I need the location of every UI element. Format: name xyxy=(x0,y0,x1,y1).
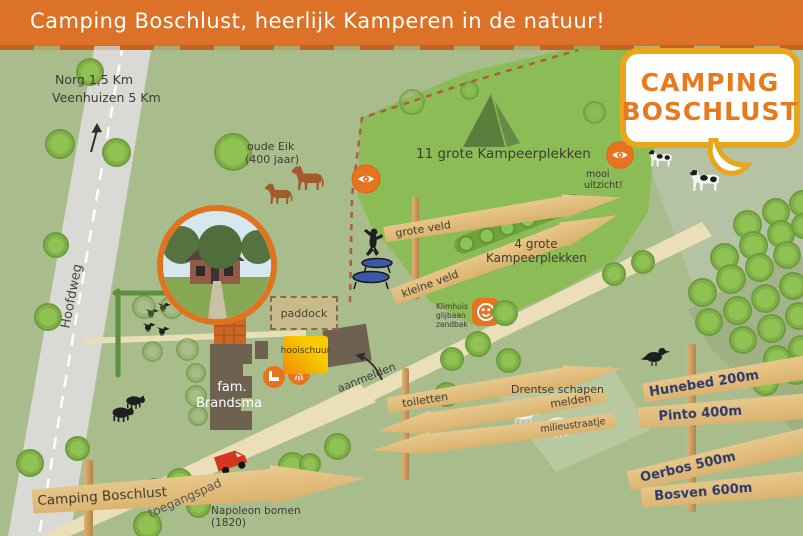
camping-map: Camping Boschlust, heerlijk Kamperen in … xyxy=(0,0,803,536)
chicken-icon xyxy=(143,323,155,332)
horse-icon xyxy=(292,166,324,190)
title-banner: Camping Boschlust, heerlijk Kamperen in … xyxy=(0,0,803,46)
field-large-label: 11 grote Kampeerplekken xyxy=(416,147,591,163)
tree-icon xyxy=(176,338,199,361)
tree-icon xyxy=(602,262,626,286)
tree-icon xyxy=(440,347,464,371)
tree-icon xyxy=(773,241,801,269)
playground-label-3: zandbak xyxy=(436,321,468,330)
horse-icon xyxy=(265,184,292,204)
logo: CAMPING BOSCHLUST xyxy=(620,48,800,148)
pig-icon xyxy=(126,396,145,410)
hay-barn-label: hooischuur xyxy=(281,346,331,356)
tree-icon xyxy=(399,89,425,115)
logo-tail xyxy=(706,138,770,190)
tree-icon xyxy=(631,250,655,274)
tree-icon xyxy=(132,295,156,319)
field-small-label-2: Kampeerplekken xyxy=(486,252,586,266)
sign-label: Pinto 400m xyxy=(658,403,742,424)
tree-icon xyxy=(324,433,351,460)
viewpoint-label-2: uitzicht! xyxy=(584,181,623,192)
paddock-label: paddock xyxy=(281,307,328,320)
chicken-icon xyxy=(157,327,169,336)
tree-icon xyxy=(751,284,780,313)
eye-icon xyxy=(352,165,380,193)
map-title: Camping Boschlust, heerlijk Kamperen in … xyxy=(30,9,605,33)
oak-label-2: (400 jaar) xyxy=(245,154,299,167)
tree-icon xyxy=(695,308,723,336)
sheep-label: Drentse schapen xyxy=(511,384,604,397)
tree-icon xyxy=(142,341,163,362)
farmhouse-photo xyxy=(157,205,277,325)
oak-label-1: oude Eik xyxy=(247,141,294,154)
field-small-label-1: 4 grote xyxy=(500,238,572,252)
tree-icon xyxy=(757,314,786,343)
direction-norg: Norg 1,5 Km xyxy=(55,73,133,87)
napoleon-label-2: (1820) xyxy=(211,517,246,529)
logo-line2: BOSCHLUST xyxy=(622,98,799,127)
trampoline-icons xyxy=(353,259,392,290)
tree-icon xyxy=(716,264,746,294)
tree-icon xyxy=(729,326,757,354)
small-shed xyxy=(255,341,268,359)
armchair-icon xyxy=(263,366,285,388)
tree-icon xyxy=(779,272,803,300)
family-label-1: fam. xyxy=(210,381,254,396)
tree-icon xyxy=(492,300,518,326)
family-label-2: Brandsma xyxy=(196,397,262,412)
tree-icon xyxy=(688,278,717,307)
tree-icon xyxy=(465,331,491,357)
hay-barn: hooischuur xyxy=(283,336,328,374)
tree-icon xyxy=(102,138,131,167)
tree-icon xyxy=(745,253,774,282)
tree-icon xyxy=(65,436,90,461)
tree-icon xyxy=(460,81,479,100)
tree-icon xyxy=(16,449,44,477)
paddock-area: paddock xyxy=(270,296,338,330)
tree-icon xyxy=(186,363,206,383)
logo-line1: CAMPING xyxy=(641,69,780,98)
tree-icon xyxy=(496,348,521,373)
napoleon-label-1: Napoleon bomen xyxy=(211,505,301,517)
bird-icon xyxy=(641,348,670,366)
direction-veenhuizen: Veenhuizen 5 Km xyxy=(52,91,161,105)
pig-icon xyxy=(113,407,134,422)
tree-icon xyxy=(583,101,606,124)
tree-icon xyxy=(43,232,69,258)
tree-icon xyxy=(723,296,752,325)
tree-icon xyxy=(45,129,75,159)
